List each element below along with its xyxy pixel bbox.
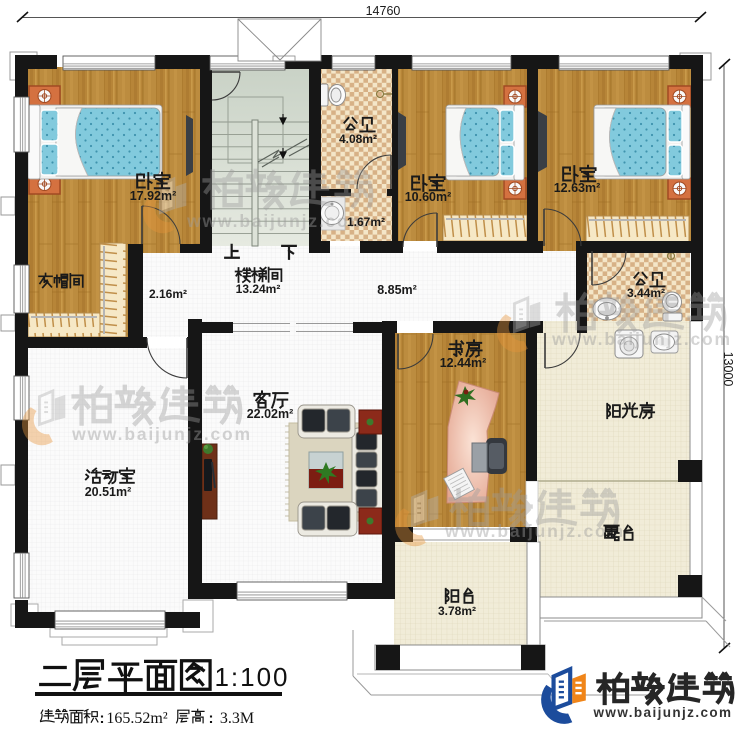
svg-text:www.baijunjz.com: www.baijunjz.com <box>71 424 252 444</box>
svg-text:13000: 13000 <box>721 352 735 387</box>
svg-text:14760: 14760 <box>366 4 401 18</box>
svg-text:8.85m²: 8.85m² <box>377 283 417 297</box>
svg-text:12.63m²: 12.63m² <box>554 181 601 195</box>
svg-text:13.24m²: 13.24m² <box>236 282 281 296</box>
svg-text:4.08m²: 4.08m² <box>339 132 377 146</box>
svg-text:www.baijunjz.com: www.baijunjz.com <box>444 521 625 541</box>
svg-text:10.60m²: 10.60m² <box>405 190 452 204</box>
svg-text::: : <box>100 710 105 727</box>
svg-text::: : <box>209 710 214 727</box>
svg-text:3.3M: 3.3M <box>220 710 254 727</box>
svg-text:20.51m²: 20.51m² <box>85 485 132 499</box>
svg-text:www.baijunjz.com: www.baijunjz.com <box>186 211 367 231</box>
svg-text:2.16m²: 2.16m² <box>149 287 187 301</box>
svg-text:3.44m²: 3.44m² <box>627 286 665 300</box>
svg-text:22.02m²: 22.02m² <box>247 407 294 421</box>
svg-text:165.52m²: 165.52m² <box>106 710 167 727</box>
svg-text:www.baijunjz.com: www.baijunjz.com <box>593 705 733 720</box>
svg-text:3.78m²: 3.78m² <box>438 604 476 618</box>
svg-text:1:100: 1:100 <box>214 662 289 692</box>
svg-text:1.67m²: 1.67m² <box>347 215 385 229</box>
svg-text:www.baijunjz.com: www.baijunjz.com <box>551 329 732 349</box>
svg-text:12.44m²: 12.44m² <box>440 356 487 370</box>
svg-text:17.92m²: 17.92m² <box>130 189 177 203</box>
